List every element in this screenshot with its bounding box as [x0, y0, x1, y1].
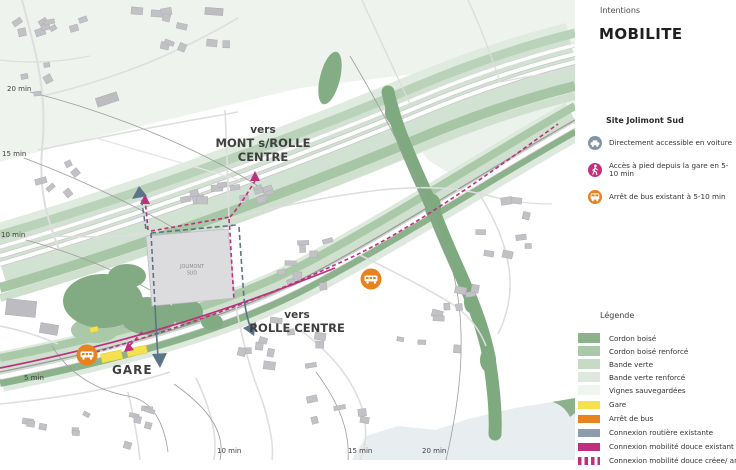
- building: [217, 182, 227, 188]
- building: [311, 416, 319, 424]
- building: [134, 416, 142, 424]
- legend-item-pt-2: Connexion routière existante: [578, 428, 736, 437]
- building: [35, 177, 48, 186]
- legend-label: Connexion routière existante: [609, 428, 713, 437]
- building: [267, 348, 275, 357]
- iso-bottom-15: 15 min: [348, 447, 372, 455]
- legend-swatch: [578, 415, 600, 423]
- iso-bottom-10: 10 min: [217, 447, 241, 455]
- legend-swatch: [578, 385, 600, 395]
- legend-swatch: [578, 401, 600, 409]
- lake: [352, 398, 575, 460]
- legend-swatch: [578, 359, 600, 369]
- iso-left-15: 15 min: [2, 150, 26, 158]
- iso-left-5: 5 min: [24, 374, 44, 382]
- legend-label: Cordon boisé renforcé: [609, 347, 688, 356]
- building: [144, 422, 152, 430]
- legend-label: Bande verte renforcé: [609, 373, 685, 382]
- building: [455, 303, 462, 311]
- building: [476, 229, 486, 234]
- building: [237, 347, 246, 357]
- legend-item-pt-3: Connexion mobilité douce existant: [578, 442, 736, 451]
- panel-kicker: Intentions: [600, 6, 640, 15]
- site-access-item-2: Arrêt de bus existant à 5-10 min: [588, 190, 736, 204]
- building: [285, 261, 297, 266]
- building: [34, 91, 41, 96]
- legend-swatch: [578, 346, 600, 356]
- site-access-list: Directement accessible en voitureAccès à…: [588, 136, 736, 216]
- road-arrow-gare: [152, 353, 167, 368]
- building: [46, 183, 56, 192]
- legend-item-pt-0: Gare: [578, 400, 736, 409]
- building: [319, 282, 327, 290]
- building: [453, 345, 461, 353]
- building: [433, 315, 444, 321]
- legend-swatch: [578, 372, 600, 382]
- pedestrian-icon: [588, 163, 602, 177]
- building: [63, 188, 73, 198]
- building: [471, 284, 480, 293]
- building: [131, 7, 143, 15]
- building: [21, 73, 29, 79]
- site-access-label: Directement accessible en voiture: [609, 139, 732, 147]
- legend-label: Bande verte: [609, 360, 653, 369]
- iso-bottom-20: 20 min: [422, 447, 446, 455]
- building: [310, 251, 318, 258]
- legend-item-area-1: Cordon boisé renforcé: [578, 346, 688, 356]
- site-access-item-0: Directement accessible en voiture: [588, 136, 736, 150]
- building: [502, 250, 514, 259]
- legend-label: Arrêt de bus: [609, 414, 653, 423]
- label-vers-mont-1: vers: [250, 124, 275, 136]
- building: [196, 196, 208, 204]
- legend-label: Connexion mobilité douce créee/ amélioré…: [609, 456, 736, 465]
- building: [162, 13, 171, 22]
- building: [525, 243, 531, 248]
- site-access-label: Arrêt de bus existant à 5-10 min: [609, 193, 726, 201]
- building: [18, 28, 27, 37]
- building: [397, 337, 404, 342]
- building: [484, 250, 495, 257]
- legend-swatch: [578, 429, 600, 437]
- legend-area-list: Cordon boiséCordon boisé renforcéBande v…: [578, 333, 688, 398]
- bus-stop-west: [77, 345, 98, 366]
- site-jolimont-sud: JOLIMONT SUD: [146, 229, 235, 306]
- label-vers-rolle-1: vers: [284, 309, 309, 321]
- label-vers-mont-3: CENTRE: [238, 150, 289, 164]
- site-access-item-1: Accès à pied depuis la gare en 5-10 min: [588, 162, 736, 178]
- iso-left-20: 20 min: [7, 85, 31, 93]
- building: [299, 245, 305, 253]
- legend-heading: Légende: [600, 311, 634, 320]
- building: [358, 408, 367, 416]
- building: [70, 168, 80, 178]
- building: [516, 234, 527, 241]
- site-access-label: Accès à pied depuis la gare en 5-10 min: [609, 162, 736, 178]
- legend-item-area-3: Bande verte renforcé: [578, 372, 688, 382]
- legend-label: Connexion mobilité douce existant: [609, 442, 734, 451]
- legend-item-pt-1: Arrêt de bus: [578, 414, 736, 423]
- iso-left-10: 10 min: [1, 231, 25, 239]
- building: [206, 39, 217, 47]
- label-vers-mont-2: MONT s/ROLLE: [216, 136, 311, 150]
- building: [500, 196, 512, 205]
- building: [123, 441, 132, 450]
- building: [297, 240, 308, 245]
- side-panel: Intentions MOBILITE Site Jolimont Sud Di…: [575, 0, 736, 460]
- building: [360, 416, 370, 424]
- building: [223, 41, 230, 48]
- legend-label: Gare: [609, 400, 626, 409]
- building: [43, 62, 50, 67]
- legend-item-area-2: Bande verte: [578, 359, 688, 369]
- building: [333, 404, 345, 410]
- building: [306, 395, 318, 404]
- legend-item-pt-4: Connexion mobilité douce créee/ amélioré…: [578, 456, 736, 465]
- label-gare: GARE: [112, 363, 153, 377]
- legend-swatch: [578, 333, 600, 343]
- map-canvas: JOLIMONT SUD: [0, 0, 575, 460]
- building: [27, 420, 35, 427]
- building: [522, 211, 530, 220]
- building: [263, 361, 276, 370]
- building: [418, 340, 426, 345]
- building: [64, 160, 72, 168]
- building: [305, 362, 317, 368]
- bus-stop-east: [361, 269, 382, 290]
- bus-icon: [588, 190, 602, 204]
- car-icon: [588, 136, 602, 150]
- mobility-map: JOLIMONT SUD: [0, 0, 575, 460]
- building: [83, 411, 91, 418]
- building: [316, 341, 324, 348]
- site-section-heading: Site Jolimont Sud: [606, 116, 684, 125]
- building: [72, 430, 79, 435]
- label-vers-rolle-2: ROLLE CENTRE: [249, 321, 345, 335]
- legend-label: Cordon boisé: [609, 334, 656, 343]
- site-label-line1: JOLIMONT: [179, 264, 204, 270]
- building: [444, 303, 450, 310]
- legend-swatch: [578, 443, 600, 451]
- legend-swatch: [578, 457, 600, 465]
- site-label-line2: SUD: [187, 271, 198, 277]
- page-title: MOBILITE: [599, 25, 683, 43]
- building: [255, 342, 263, 350]
- legend-item-area-4: Vignes sauvegardées: [578, 385, 688, 395]
- legend-label: Vignes sauvegardées: [609, 386, 686, 395]
- building: [39, 423, 47, 430]
- legend-item-area-0: Cordon boisé: [578, 333, 688, 343]
- building: [293, 272, 302, 280]
